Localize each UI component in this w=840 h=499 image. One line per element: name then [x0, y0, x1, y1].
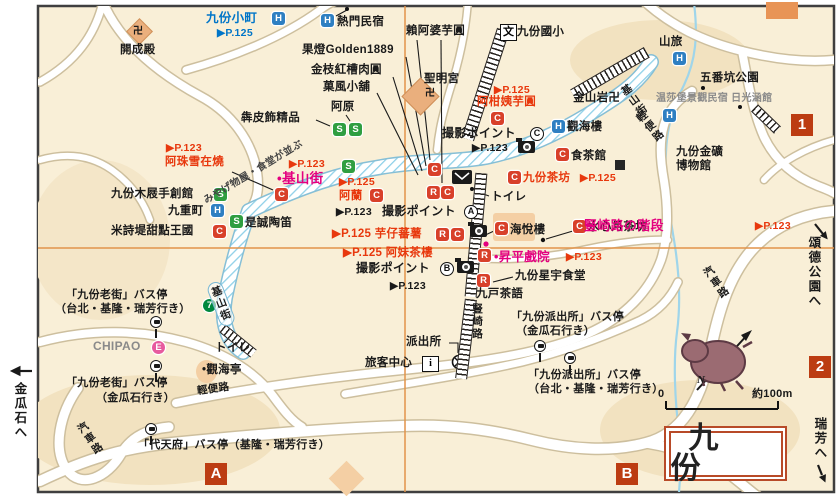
- hotel-icon: H: [663, 109, 676, 122]
- poi-shengming-temple: 聖明宮: [424, 73, 459, 86]
- offmap-ruifang: 瑞芳へ: [812, 417, 826, 461]
- poi-alan: 阿蘭: [339, 190, 363, 203]
- photo-point-b-label: 撮影ポイント: [356, 262, 430, 276]
- page-ref: ▶P.125: [494, 84, 530, 96]
- shengping-dot: [483, 241, 488, 246]
- bus-stop-laojie-1-name: 「九份老街」バス停: [66, 289, 168, 302]
- poi-kafeng: 菓風小舖: [323, 81, 370, 94]
- hotel-icon: H: [211, 204, 224, 217]
- cafe-icon: C: [556, 148, 569, 161]
- manji-icon: 卍: [425, 88, 435, 100]
- circled-a: A: [464, 205, 478, 219]
- poi-benpi: 犇皮飾精品: [241, 112, 300, 125]
- shop-icon: S: [349, 123, 362, 136]
- visitor-center-label: 旅客中心: [365, 357, 412, 370]
- shop-icon: S: [342, 160, 355, 173]
- grid-marker-b: B: [616, 463, 638, 485]
- toilet-label: トイレ: [215, 342, 250, 355]
- bus-stop-paichusuo-2-dest: （台北・基隆・瑞芳行き）: [528, 383, 664, 396]
- poi-jiufen-komachi: 九份小町: [206, 11, 257, 25]
- offmap-jinguashi: 金瓜石へ: [12, 382, 26, 440]
- school-icon: 文: [500, 24, 517, 41]
- page-ref: ▶P.123: [390, 280, 426, 292]
- poi-kaiseiden: 開成殿: [120, 44, 155, 57]
- offmap-songde-park: 頌德公園へ: [806, 236, 820, 309]
- poi-azhu: 阿珠雪在燒: [165, 156, 224, 169]
- page-ref: ▶P.125: [217, 27, 253, 39]
- camera-icon: [470, 225, 487, 237]
- poi-jiuhu-chayu: 九戸茶語: [476, 288, 523, 301]
- poi-golden1889: 果燈Golden1889: [302, 44, 394, 57]
- manji-icon: 卍: [133, 26, 143, 38]
- grid-marker-1: 1: [791, 114, 813, 136]
- shop-icon: S: [230, 215, 243, 228]
- poi-shicheng-ocarina: 是誠陶笛: [245, 217, 292, 230]
- poi-lai-apo: 賴阿婆芋圓: [406, 25, 465, 38]
- restaurant-icon: R: [478, 249, 491, 262]
- bus-stop-icon: [534, 340, 546, 363]
- poi-shuqi-stairs: 豎崎路の階段: [584, 219, 664, 234]
- restaurant-icon: R: [436, 228, 449, 241]
- page-ref: ▶P.123: [566, 251, 602, 263]
- poi-akan-yi: 阿柑姨芋圓: [477, 96, 536, 109]
- poi-muji-clogs: 九份木屐手創館: [111, 188, 194, 201]
- shop-icon: S: [333, 123, 346, 136]
- poi-guanhailou: 觀海樓: [567, 121, 602, 134]
- poi-jiuchongting: 九重町: [168, 205, 203, 218]
- circled-c: C: [530, 127, 544, 141]
- poi-gold-museum-line1: 九份金礦: [676, 146, 723, 159]
- cafe-icon: C: [495, 222, 508, 235]
- poi-remen-minsu: 熱門民宿: [337, 16, 384, 29]
- page-ref: ▶P.123: [336, 206, 372, 218]
- street-shuqi-road: 豎崎路: [471, 303, 483, 341]
- bus-stop-laojie-2-dest: （金瓜石行き）: [96, 392, 175, 405]
- restaurant-icon: R: [427, 186, 440, 199]
- page-ref: ▶P.123: [472, 142, 508, 154]
- cafe-icon: C: [451, 228, 464, 241]
- poi-windsor: 温莎堡景觀民宿 日光涵館: [656, 93, 772, 105]
- poi-mishidi: 米詩堤甜點王國: [111, 225, 194, 238]
- poi-shichaguan: 食茶館: [571, 150, 606, 163]
- bus-stop-icon: [564, 352, 576, 375]
- page-ref: ▶P.123: [289, 158, 325, 170]
- camera-icon: [518, 141, 535, 153]
- bus-stop-icon: [145, 423, 157, 446]
- poi-xingyu-eatery: 九份星宇食堂: [515, 270, 586, 283]
- jiufen-tourist-map: N 九份小町 H ▶P.125 卍 開成殿 H 熱門民宿 賴阿婆芋圓 果燈Gol…: [0, 0, 840, 499]
- cafe-icon: C: [428, 163, 441, 176]
- map-title: 九份: [671, 424, 781, 484]
- poi-amei-teahouse: ▶P.125 阿妹茶樓: [343, 247, 433, 260]
- poi-shengping-theater: •昇平戲院: [494, 250, 550, 264]
- grid-marker-a: A: [205, 463, 227, 485]
- page-ref: ▶P.125: [580, 172, 616, 184]
- poi-ayuan: 阿原: [331, 101, 355, 114]
- poi-jiufen-teahouse: 九份茶坊: [523, 172, 570, 185]
- north-letter: N: [696, 374, 706, 386]
- bus-stop-paichusuo-2-name: 「九份派出所」バス停: [528, 369, 641, 382]
- grid-marker-2: 2: [809, 356, 831, 378]
- poi-gold-museum-line2: 博物館: [676, 160, 711, 173]
- cafe-icon: C: [508, 171, 521, 184]
- poi-wufankeng-park: 五番坑公園: [700, 72, 759, 85]
- poi-jiufen-elementary: 九份國小: [517, 26, 564, 39]
- cafe-icon: C: [491, 112, 504, 125]
- bus-stop-daitianfu: 「代天府」バス停（基隆・瑞芳行き）: [138, 439, 330, 452]
- museum-building: [615, 160, 625, 170]
- info-icon: i: [422, 356, 439, 372]
- hotel-icon: H: [673, 52, 686, 65]
- map-title-box: 九份: [664, 426, 787, 481]
- poi-yuzai-fanshu: ▶P.125 芋仔蕃薯: [332, 228, 422, 241]
- poi-jishan-street: •基山街: [277, 171, 323, 187]
- scale-zero: 0: [658, 388, 664, 401]
- photo-point-a-label: 撮影ポイント: [382, 205, 456, 219]
- hotel-icon: H: [552, 120, 565, 133]
- bus-stop-laojie-1-dest: （台北・基隆・瑞芳行き）: [55, 303, 191, 316]
- poi-haiyuelou: 海悅樓: [510, 224, 545, 237]
- camera-icon: [457, 261, 474, 273]
- photo-point-c-label: 撮影ポイント: [442, 127, 516, 141]
- bus-stop-paichusuo-1-dest: （金瓜石行き）: [516, 325, 595, 338]
- page-ref: ▶P.125: [339, 176, 375, 188]
- cafe-icon: C: [370, 189, 383, 202]
- bus-stop-icon: [150, 316, 162, 339]
- cafe-icon: C: [441, 186, 454, 199]
- hotel-icon: H: [321, 14, 334, 27]
- bus-stop-paichusuo-1-name: 「九份派出所」バス停: [511, 311, 624, 324]
- poi-yamatabi: 山旅: [659, 36, 683, 49]
- page-ref: ▶P.123: [166, 142, 202, 154]
- poi-guanhaiting: •觀海亭: [202, 364, 242, 377]
- scale-distance: 約100m: [752, 388, 793, 401]
- page-ref: ▶P.123: [755, 220, 791, 232]
- circled-b: B: [440, 262, 454, 276]
- police-box-label: 派出所: [406, 336, 441, 349]
- cafe-icon: C: [275, 188, 288, 201]
- building-topright: [766, 2, 798, 19]
- cafe-icon: C: [213, 225, 226, 238]
- restaurant-icon: R: [477, 274, 490, 287]
- este-icon: E: [152, 341, 165, 354]
- poi-jinzhi: 金枝紅槽肉圓: [311, 64, 382, 77]
- toilet-label: トイレ: [491, 191, 526, 204]
- post-office-icon: [452, 170, 472, 184]
- bus-stop-icon: [150, 360, 162, 383]
- hotel-icon: H: [272, 12, 285, 25]
- poi-jinshanyan: 金山岩卍: [573, 92, 620, 105]
- poi-chipao: CHIPAO: [93, 340, 141, 354]
